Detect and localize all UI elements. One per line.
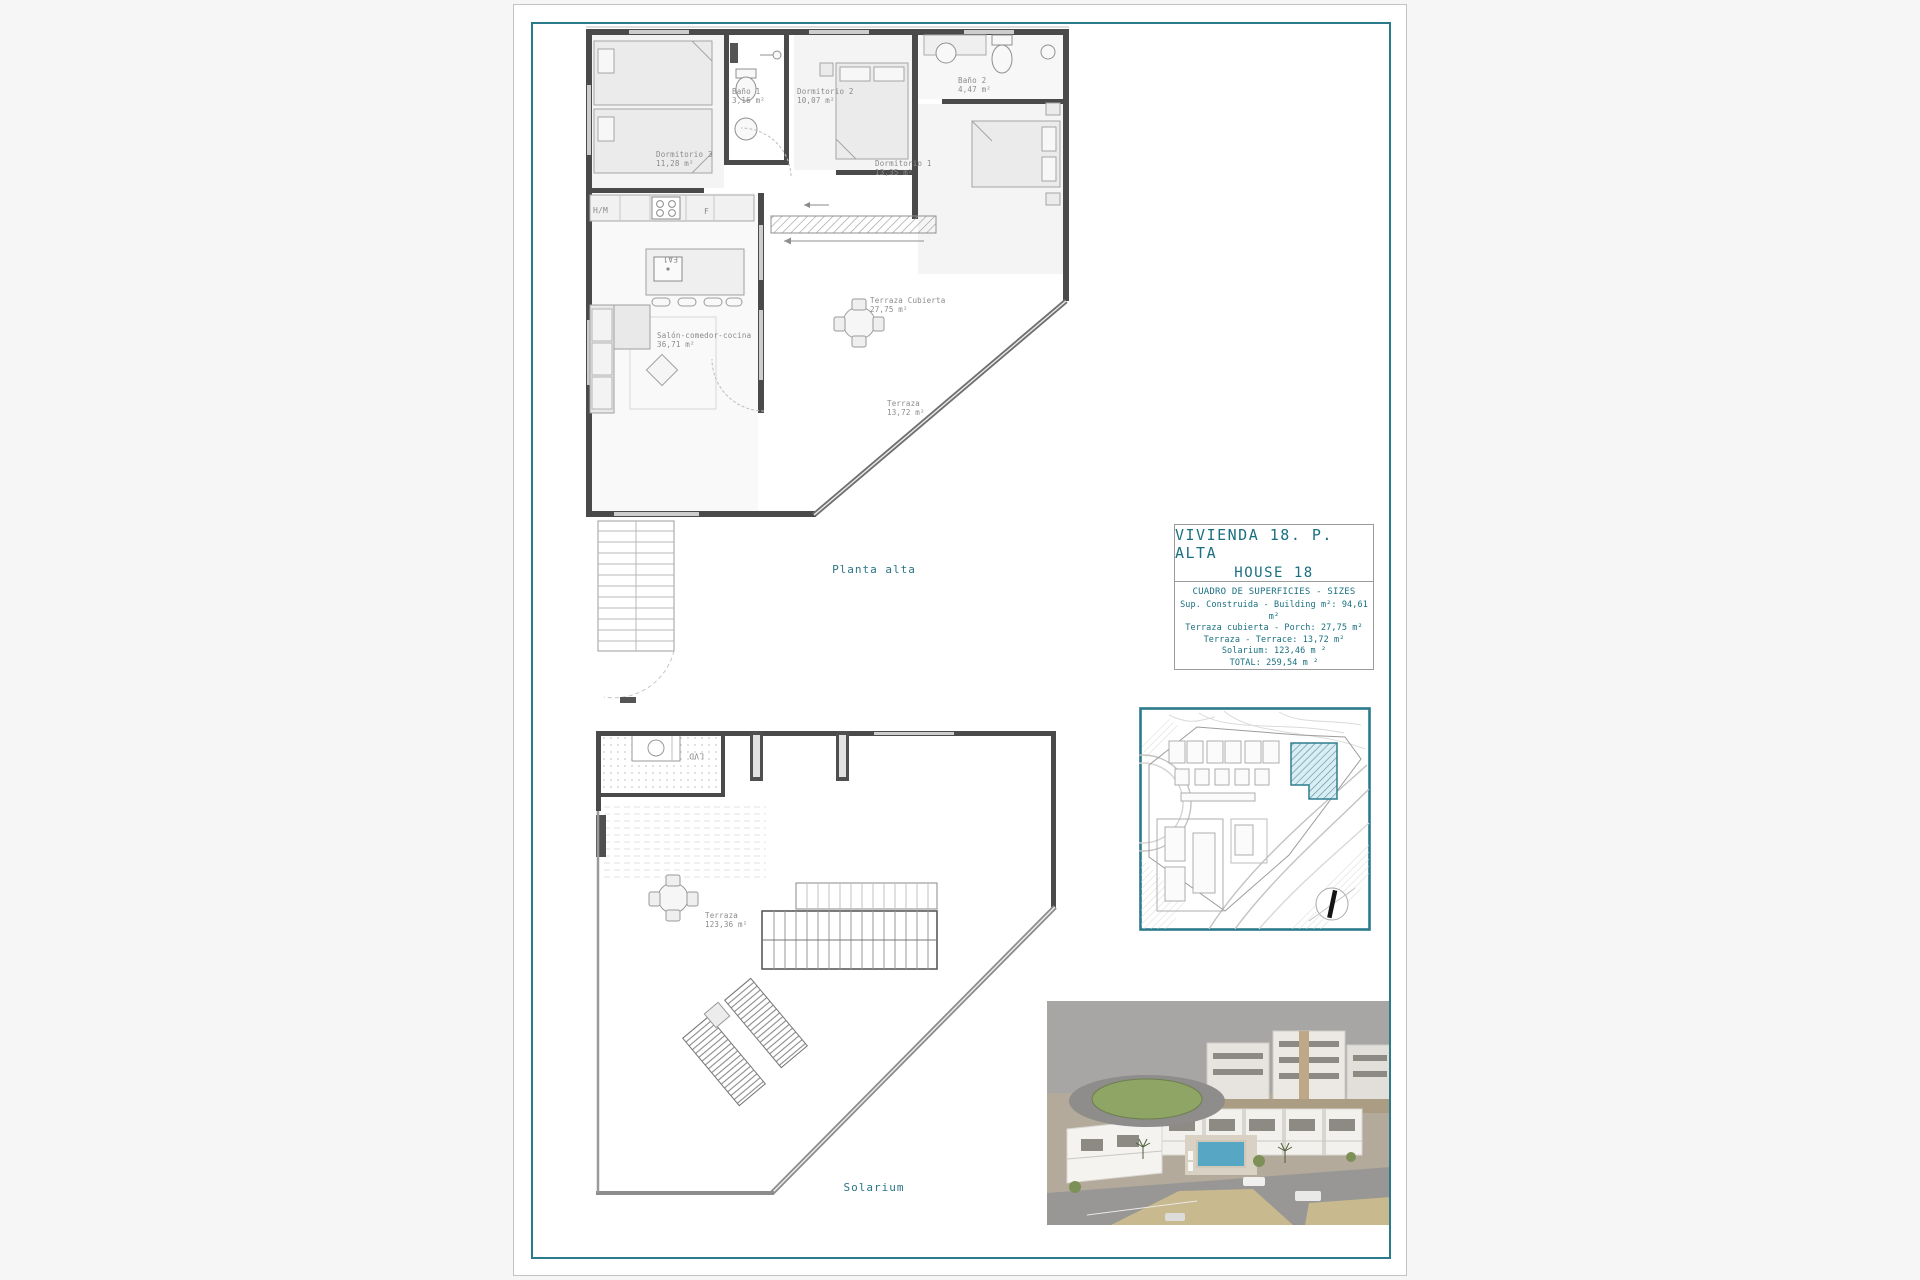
appliance-label-f: F: [704, 208, 709, 217]
dining-table-icon: [649, 875, 698, 921]
appliance-label-island: FA1: [663, 254, 678, 263]
laundry-room: [601, 735, 719, 793]
room-area: 13,35 m²: [875, 169, 932, 178]
solarium-floor-plan: [574, 715, 1094, 1255]
room-area: 11,28 m²: [656, 160, 713, 169]
house-title: VIVIENDA 18. P. ALTA: [1175, 526, 1373, 562]
size-row-solarium: Solarium: 123,46 m ²: [1175, 646, 1373, 658]
room-name: Dormitorio 3: [656, 150, 713, 159]
house-subtitle: HOUSE 18: [1234, 565, 1313, 581]
room-label-dormitorio3: Dormitorio 3 11,28 m²: [656, 151, 713, 168]
room-name: Terraza Cubierta: [870, 296, 945, 305]
room-name: Terraza: [705, 911, 738, 920]
room-label-dormitorio1: Dormitorio 1 13,35 m²: [875, 160, 932, 177]
laundry-label: LVD: [689, 751, 704, 760]
room-label-terraza-cubierta: Terraza Cubierta 27,75 m²: [870, 297, 945, 314]
room-area: 10,07 m²: [797, 97, 854, 106]
size-row-terrace: Terraza - Terrace: 13,72 m²: [1175, 635, 1373, 647]
plan-caption-planta-alta: Planta alta: [799, 563, 949, 576]
render-roundabout: [1069, 1075, 1225, 1127]
room-label-terraza: Terraza 13,72 m²: [887, 400, 925, 417]
render-3d-image: [1047, 1001, 1391, 1225]
room-label-dormitorio2: Dormitorio 2 10,07 m²: [797, 88, 854, 105]
upper-floor-plan: [574, 25, 1094, 715]
room-label-bano1: Baño 1 3,16 m²: [732, 88, 765, 105]
render-pool: [1185, 1135, 1257, 1175]
room-area: 36,71 m²: [657, 341, 751, 350]
room-label-salon: Salón-comedor-cocina 36,71 m²: [657, 332, 751, 349]
room-label-solarium-terraza: Terraza 123,36 m²: [705, 912, 747, 929]
site-plan-inset: [1139, 707, 1371, 931]
room-name: Salón-comedor-cocina: [657, 331, 751, 340]
pergola-shade-zone: [601, 805, 766, 881]
room-area: 27,75 m²: [870, 306, 945, 315]
size-row-total: TOTAL: 259,54 m ²: [1175, 658, 1373, 670]
plan-caption-solarium: Solarium: [799, 1181, 949, 1194]
exterior-stairs-icon: [598, 521, 674, 703]
room-label-bano2: Baño 2 4,47 m²: [958, 77, 991, 94]
room-name: Baño 2: [958, 76, 986, 85]
sizes-table: CUADRO DE SUPERFICIES - SIZES Sup. Const…: [1175, 582, 1373, 669]
sizes-table-title: CUADRO DE SUPERFICIES - SIZES: [1175, 587, 1373, 597]
stairs-icon: [762, 883, 937, 969]
appliance-label-hm: H/M: [593, 207, 608, 216]
title-block-header: VIVIENDA 18. P. ALTA HOUSE 18: [1175, 525, 1373, 582]
title-block: VIVIENDA 18. P. ALTA HOUSE 18 CUADRO DE …: [1174, 524, 1374, 670]
room-name: Dormitorio 1: [875, 159, 932, 168]
room-area: 3,16 m²: [732, 97, 765, 106]
size-row-porch: Terraza cubierta - Porch: 27,75 m²: [1175, 623, 1373, 635]
room-area: 4,47 m²: [958, 86, 991, 95]
room-area: 13,72 m²: [887, 409, 925, 418]
room-area: 123,36 m²: [705, 921, 747, 930]
room-name: Dormitorio 2: [797, 87, 854, 96]
drawing-sheet: Dormitorio 3 11,28 m² Baño 1 3,16 m² Dor…: [513, 4, 1407, 1276]
stairs-icon: [771, 216, 936, 245]
room-name: Baño 1: [732, 87, 760, 96]
room-name: Terraza: [887, 399, 920, 408]
size-row-building: Sup. Construida - Building m²: 94,61 m²: [1175, 600, 1373, 623]
